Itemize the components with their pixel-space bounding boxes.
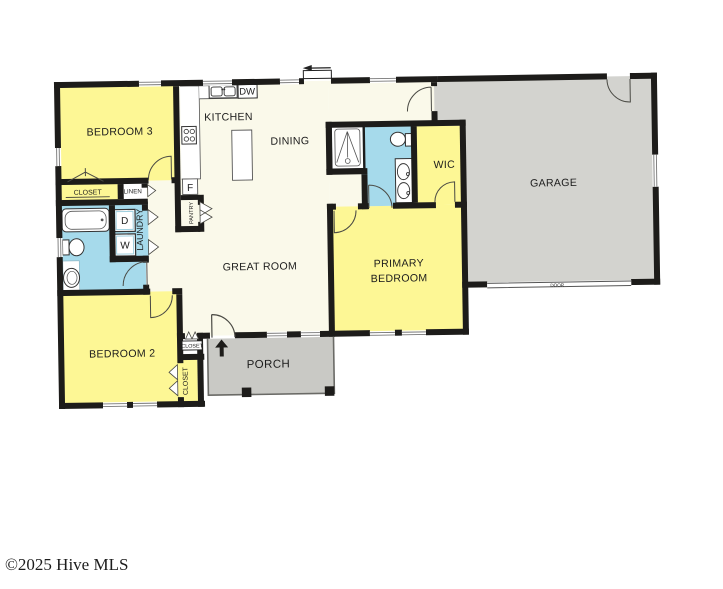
svg-text:©2025 Hive MLS: ©2025 Hive MLS (5, 555, 128, 574)
svg-text:BEDROOM 2: BEDROOM 2 (89, 348, 155, 361)
svg-text:KITCHEN: KITCHEN (204, 111, 253, 124)
svg-text:PRIMARY: PRIMARY (374, 257, 424, 270)
svg-text:DOOR: DOOR (550, 283, 565, 288)
svg-text:BEDROOM: BEDROOM (371, 272, 428, 285)
svg-text:GREAT ROOM: GREAT ROOM (223, 260, 298, 273)
svg-text:PANTRY: PANTRY (189, 202, 195, 225)
svg-text:WIC: WIC (433, 159, 455, 171)
svg-text:LAUNDRY: LAUNDRY (134, 209, 145, 251)
svg-text:DINING: DINING (270, 135, 309, 148)
svg-text:F: F (187, 183, 193, 194)
svg-text:BEDROOM 3: BEDROOM 3 (87, 126, 153, 139)
svg-text:LINEN: LINEN (124, 188, 142, 195)
svg-text:CLOSET: CLOSET (74, 189, 103, 196)
svg-text:CLOSET: CLOSET (182, 366, 189, 395)
svg-text:DW: DW (239, 86, 255, 97)
svg-text:W: W (120, 240, 130, 251)
svg-text:GARAGE: GARAGE (530, 177, 577, 190)
svg-text:D: D (121, 216, 128, 227)
svg-text:CLOSET: CLOSET (181, 343, 203, 349)
svg-text:PORCH: PORCH (247, 358, 291, 371)
